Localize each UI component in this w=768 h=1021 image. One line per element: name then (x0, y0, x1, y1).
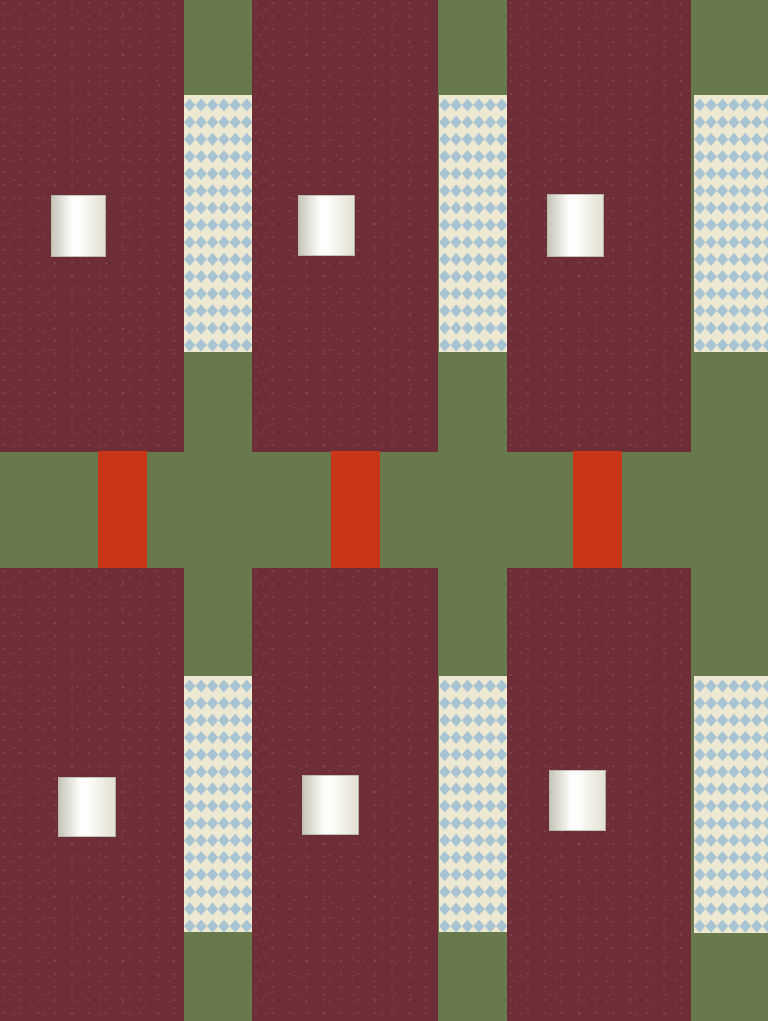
red-connector-bar (573, 451, 622, 568)
red-connector-bar (98, 451, 147, 568)
diamond-pattern-strip (694, 676, 768, 933)
diamond-grid-graphic (184, 95, 252, 352)
diamond-grid-graphic (439, 676, 507, 932)
diamond-pattern-strip (694, 95, 768, 352)
gradient-square (298, 195, 355, 256)
diamond-grid-graphic (694, 95, 768, 352)
diamond-grid-graphic (694, 676, 768, 933)
diamond-grid-graphic (184, 676, 252, 932)
diamond-pattern-strip (439, 95, 507, 352)
diamond-pattern-strip (184, 676, 252, 932)
gradient-square (302, 775, 359, 835)
diamond-pattern-strip (184, 95, 252, 352)
gradient-square (549, 770, 606, 831)
gradient-square (547, 194, 604, 257)
diamond-grid-graphic (439, 95, 507, 352)
gradient-square (51, 195, 106, 257)
red-connector-bar (331, 451, 380, 568)
abstract-pattern-canvas (0, 0, 768, 1021)
gradient-square (58, 777, 116, 837)
diamond-pattern-strip (439, 676, 507, 932)
